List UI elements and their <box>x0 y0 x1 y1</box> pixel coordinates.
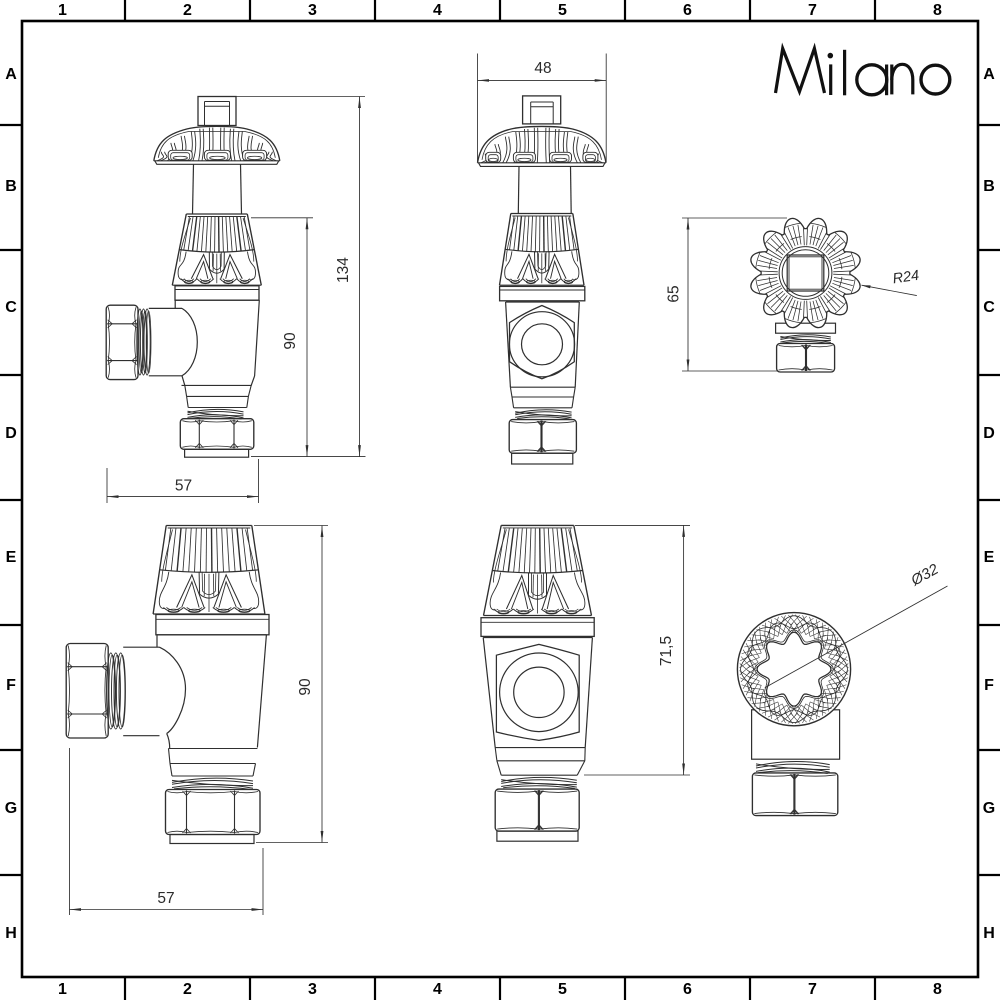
svg-text:48: 48 <box>534 60 551 77</box>
svg-text:D: D <box>983 425 995 442</box>
svg-text:2: 2 <box>183 981 192 998</box>
svg-text:A: A <box>5 66 17 83</box>
svg-text:57: 57 <box>175 478 192 495</box>
svg-text:7: 7 <box>808 2 817 19</box>
svg-text:G: G <box>983 800 995 817</box>
svg-text:90: 90 <box>297 678 314 696</box>
svg-text:5: 5 <box>558 981 567 998</box>
svg-text:5: 5 <box>558 2 567 19</box>
svg-text:H: H <box>5 925 17 942</box>
svg-text:57: 57 <box>157 890 174 907</box>
svg-text:3: 3 <box>308 2 317 19</box>
svg-text:134: 134 <box>335 257 352 283</box>
svg-text:7: 7 <box>808 981 817 998</box>
svg-text:8: 8 <box>933 981 942 998</box>
svg-text:C: C <box>5 299 17 316</box>
svg-text:4: 4 <box>433 981 442 998</box>
svg-text:6: 6 <box>683 2 692 19</box>
svg-text:1: 1 <box>58 981 67 998</box>
svg-text:6: 6 <box>683 981 692 998</box>
svg-text:4: 4 <box>433 2 442 19</box>
svg-text:H: H <box>983 925 995 942</box>
svg-text:71,5: 71,5 <box>658 636 675 666</box>
svg-text:F: F <box>6 677 16 694</box>
svg-text:G: G <box>5 800 17 817</box>
svg-text:8: 8 <box>933 2 942 19</box>
svg-text:D: D <box>5 425 17 442</box>
svg-text:1: 1 <box>58 2 67 19</box>
svg-text:65: 65 <box>666 285 683 302</box>
svg-text:2: 2 <box>183 2 192 19</box>
svg-text:B: B <box>5 178 17 195</box>
svg-text:B: B <box>983 178 995 195</box>
svg-text:E: E <box>984 549 995 566</box>
svg-text:90: 90 <box>282 332 299 350</box>
svg-text:3: 3 <box>308 981 317 998</box>
svg-text:F: F <box>984 677 994 694</box>
svg-text:A: A <box>983 66 995 83</box>
svg-text:E: E <box>6 549 17 566</box>
svg-text:C: C <box>983 299 995 316</box>
